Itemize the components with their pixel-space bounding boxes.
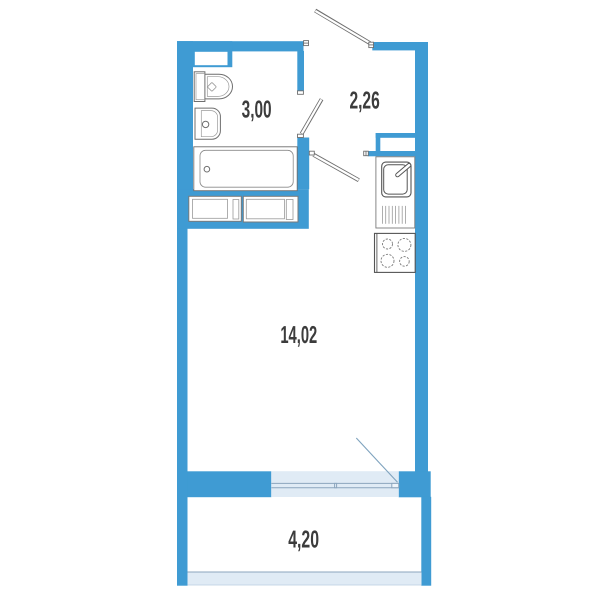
svg-text:14,02: 14,02 [280, 322, 317, 349]
svg-text:2,26: 2,26 [349, 87, 379, 114]
svg-text:3,00: 3,00 [242, 97, 272, 124]
svg-text:4,20: 4,20 [288, 526, 319, 553]
